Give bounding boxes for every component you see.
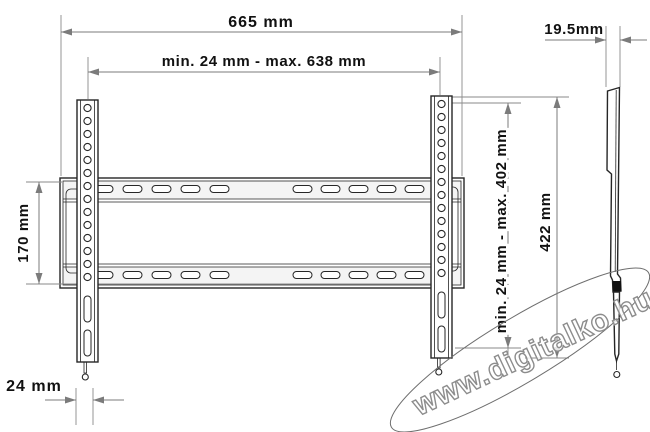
mounting-hole xyxy=(438,230,445,237)
mounting-hole xyxy=(84,104,91,111)
plate-slot xyxy=(152,186,171,193)
mounting-hole xyxy=(438,217,445,224)
left-bracket xyxy=(77,100,98,380)
mounting-hole xyxy=(84,182,91,189)
mounting-hole xyxy=(438,204,445,211)
dimension-depth: 19.5mm xyxy=(544,21,647,87)
mounting-hole xyxy=(84,143,91,150)
side-bolt xyxy=(613,281,622,292)
mounting-hole xyxy=(84,208,91,215)
plate-slot xyxy=(152,272,171,279)
dimension-width-range: min. 24 mm - max. 638 mm xyxy=(88,53,440,99)
plate-slot xyxy=(321,272,340,279)
mounting-hole xyxy=(84,273,91,280)
mounting-hole xyxy=(438,100,445,107)
mounting-hole xyxy=(84,169,91,176)
plate-slot xyxy=(123,272,142,279)
side-foot-ball xyxy=(614,372,620,378)
right-foot-ball xyxy=(436,369,442,375)
mounting-hole xyxy=(84,260,91,267)
label-height-total: 422 mm xyxy=(537,192,554,251)
label-plate-height: 170 mm xyxy=(15,203,32,262)
plate-slot xyxy=(349,186,368,193)
mounting-hole xyxy=(438,191,445,198)
plate-slot xyxy=(210,186,229,193)
mounting-hole xyxy=(438,139,445,146)
plate-slot xyxy=(293,186,312,193)
left-leg-slot xyxy=(84,296,91,322)
label-foot-depth: 24 mm xyxy=(6,378,62,395)
plate-slot xyxy=(181,272,200,279)
mounting-hole xyxy=(438,178,445,185)
plate-slot xyxy=(377,186,396,193)
mounting-hole xyxy=(438,113,445,120)
mounting-hole xyxy=(438,126,445,133)
plate-slot xyxy=(405,272,424,279)
mounting-hole xyxy=(438,165,445,172)
right-bracket xyxy=(431,96,452,375)
label-height-range: min. 24 mm - max. 402 mm xyxy=(493,129,510,334)
plate-slot xyxy=(377,272,396,279)
mounting-hole xyxy=(84,130,91,137)
side-profile xyxy=(607,88,621,293)
dimension-width-total: 665 mm xyxy=(61,14,462,176)
mounting-hole xyxy=(84,195,91,202)
dimension-foot-depth: 24 mm xyxy=(6,378,124,425)
plate-slot xyxy=(405,186,424,193)
tv-wall-mount-dimension-diagram: 665 mm min. 24 mm - max. 638 mm 19.5mm 1… xyxy=(0,0,650,432)
label-width-total: 665 mm xyxy=(228,14,294,31)
mounting-hole xyxy=(84,234,91,241)
plate-slot xyxy=(321,186,340,193)
mounting-hole xyxy=(84,117,91,124)
plate-slot xyxy=(349,272,368,279)
left-foot-stem xyxy=(84,362,87,373)
plate-slot xyxy=(123,186,142,193)
plate-slot xyxy=(293,272,312,279)
label-depth: 19.5mm xyxy=(544,21,603,38)
plate-slot xyxy=(210,272,229,279)
left-leg-slot xyxy=(84,330,91,356)
right-leg-slot xyxy=(438,326,445,352)
left-foot-ball xyxy=(82,374,88,380)
mounting-hole xyxy=(438,152,445,159)
right-leg-slot xyxy=(438,292,445,318)
mounting-hole xyxy=(438,256,445,263)
mounting-hole xyxy=(84,221,91,228)
mounting-hole xyxy=(84,247,91,254)
mounting-hole xyxy=(84,156,91,163)
technical-drawing: 665 mm min. 24 mm - max. 638 mm 19.5mm 1… xyxy=(0,0,650,432)
mounting-hole xyxy=(438,269,445,276)
mounting-hole xyxy=(438,243,445,250)
plate-slot xyxy=(181,186,200,193)
wall-plate-front-view xyxy=(60,178,464,288)
label-width-range: min. 24 mm - max. 638 mm xyxy=(162,53,367,70)
